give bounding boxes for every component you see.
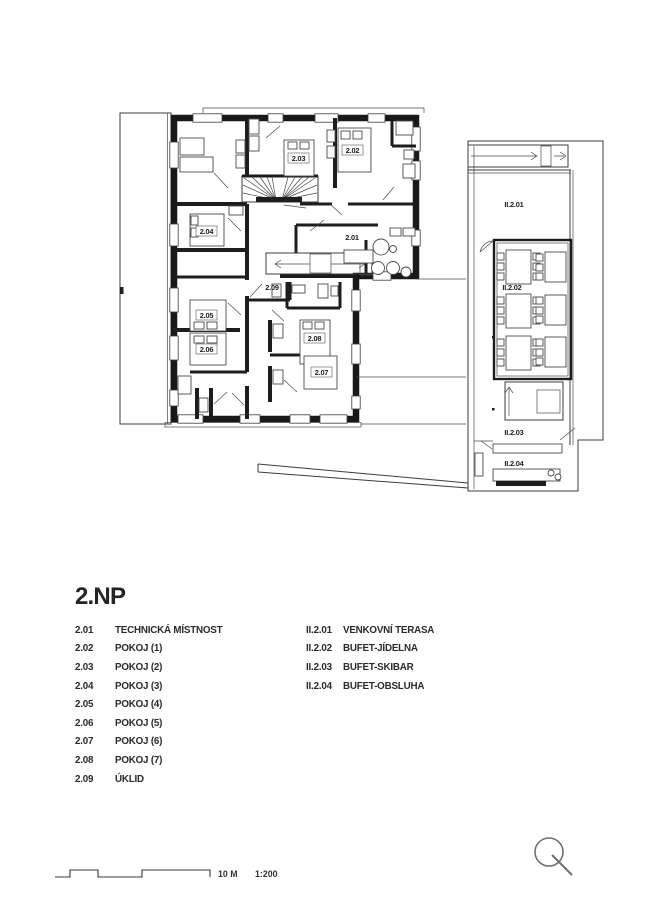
legend-row: 2.01 TECHNICKÁ MÍSTNOST bbox=[75, 621, 300, 640]
legend-name: POKOJ (3) bbox=[115, 681, 162, 692]
room-label-2-04: 2.04 bbox=[200, 227, 215, 236]
room-label-ii-2-02: II.2.02 bbox=[502, 283, 521, 292]
scale-length-label: 10 M bbox=[218, 869, 238, 879]
room-label-ii-2-03: II.2.03 bbox=[504, 428, 523, 437]
legend-code: 2.05 bbox=[75, 699, 115, 710]
legend-name: TECHNICKÁ MÍSTNOST bbox=[115, 625, 222, 636]
legend-row: II.2.01 VENKOVNÍ TERASA bbox=[306, 621, 506, 640]
scale-bar: 10 M 1:200 bbox=[40, 860, 300, 890]
roof-overhang bbox=[203, 108, 424, 113]
legend-code: 2.03 bbox=[75, 662, 115, 673]
legend-name: POKOJ (2) bbox=[115, 662, 162, 673]
legend-row: 2.07 POKOJ (6) bbox=[75, 733, 300, 752]
legend-name: VENKOVNÍ TERASA bbox=[343, 625, 434, 636]
main-building: 2.02 2.03 2.04 2.01 2.05 2.06 2.08 2.07 … bbox=[120, 108, 424, 427]
room-label-ii-2-01: II.2.01 bbox=[504, 200, 523, 209]
legend-name: POKOJ (5) bbox=[115, 718, 162, 729]
scale-ratio-label: 1:200 bbox=[255, 869, 278, 879]
legend-code: 2.01 bbox=[75, 625, 115, 636]
balcony-strip bbox=[120, 113, 171, 424]
legend-row: 2.06 POKOJ (5) bbox=[75, 714, 300, 733]
legend-name: BUFET-SKIBAR bbox=[343, 662, 414, 673]
room-label-2-01: 2.01 bbox=[345, 233, 359, 242]
legend-row: II.2.04 BUFET-OBSLUHA bbox=[306, 677, 506, 696]
legend-code: 2.08 bbox=[75, 755, 115, 766]
legend-code: II.2.04 bbox=[306, 681, 343, 692]
floor-plan-drawing: 2.02 2.03 2.04 2.01 2.05 2.06 2.08 2.07 … bbox=[0, 0, 645, 560]
legend-code: 2.02 bbox=[75, 643, 115, 654]
annex-stair bbox=[505, 382, 563, 420]
magnifier-icon bbox=[525, 830, 585, 890]
legend-name: POKOJ (4) bbox=[115, 699, 162, 710]
legend-row: 2.05 POKOJ (4) bbox=[75, 695, 300, 714]
legend-row: 2.02 POKOJ (1) bbox=[75, 640, 300, 659]
legend-left-column: 2.01 TECHNICKÁ MÍSTNOST 2.02 POKOJ (1) 2… bbox=[75, 621, 300, 788]
site-lines bbox=[258, 279, 468, 488]
room-label-2-03: 2.03 bbox=[292, 154, 306, 163]
room-label-ii-2-04: II.2.04 bbox=[504, 459, 524, 468]
legend-name: POKOJ (7) bbox=[115, 755, 162, 766]
legend-code: 2.06 bbox=[75, 718, 115, 729]
legend-name: POKOJ (6) bbox=[115, 736, 162, 747]
annex-building: II.2.01 II.2.02 II.2.03 II.2.04 bbox=[468, 141, 603, 491]
legend-code: 2.04 bbox=[75, 681, 115, 692]
legend-name: BUFET-JÍDELNA bbox=[343, 643, 418, 654]
room-label-2-06: 2.06 bbox=[200, 345, 214, 354]
legend-row: 2.08 POKOJ (7) bbox=[75, 751, 300, 770]
legend-row: II.2.03 BUFET-SKIBAR bbox=[306, 658, 506, 677]
legend-row: II.2.02 BUFET-JÍDELNA bbox=[306, 640, 506, 659]
legend-code: II.2.03 bbox=[306, 662, 343, 673]
annex-entry-stair bbox=[468, 145, 568, 167]
legend-right-column: II.2.01 VENKOVNÍ TERASA II.2.02 BUFET-JÍ… bbox=[306, 621, 506, 695]
legend-row: 2.04 POKOJ (3) bbox=[75, 677, 300, 696]
legend-name: BUFET-OBSLUHA bbox=[343, 681, 424, 692]
legend-code: II.2.01 bbox=[306, 625, 343, 636]
room-label-2-02: 2.02 bbox=[346, 146, 360, 155]
legend-code: II.2.02 bbox=[306, 643, 343, 654]
legend-name: POKOJ (1) bbox=[115, 643, 162, 654]
legend-row: 2.03 POKOJ (2) bbox=[75, 658, 300, 677]
bar-area bbox=[474, 428, 575, 486]
room-label-2-09: 2.09 bbox=[265, 283, 279, 292]
dining-room bbox=[480, 240, 571, 411]
room-label-2-07: 2.07 bbox=[315, 368, 329, 377]
room-label-2-08: 2.08 bbox=[308, 334, 322, 343]
legend-name: ÚKLID bbox=[115, 774, 144, 785]
legend-code: 2.07 bbox=[75, 736, 115, 747]
page-title: 2.NP bbox=[75, 583, 125, 611]
legend-row: 2.09 ÚKLID bbox=[75, 770, 300, 789]
room-label-2-05: 2.05 bbox=[200, 311, 214, 320]
legend-code: 2.09 bbox=[75, 774, 115, 785]
drawing-sheet: 2.02 2.03 2.04 2.01 2.05 2.06 2.08 2.07 … bbox=[0, 0, 645, 922]
